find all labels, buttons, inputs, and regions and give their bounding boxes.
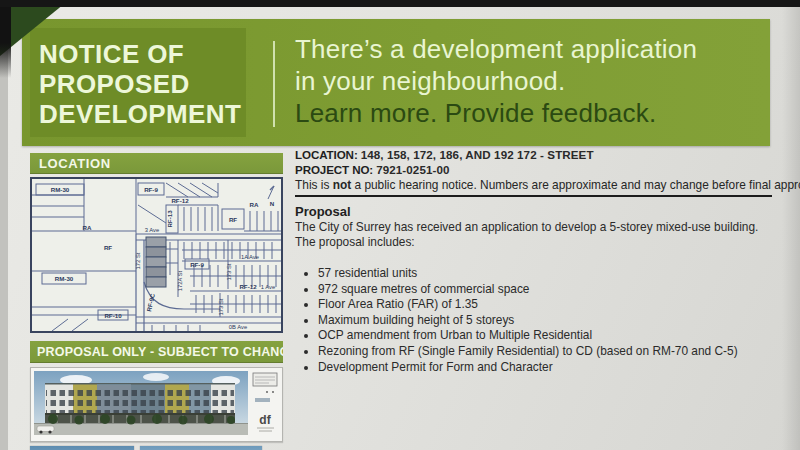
bullet-residential-units: 57 residential units [318,266,796,282]
map-label-rf9: RF-9 [144,186,158,193]
proposal-heading: Proposal [295,204,351,219]
map-label-rf10: RF-10 [104,312,122,319]
header-divider [273,41,275,127]
map-label-1-ave: 1 Ave [261,284,275,290]
map-label-172st: 172 St [135,252,141,269]
zoning-map-drawing: RM-30 RF-9 RF-12 RA N RF-13 RF RA 3 Ave … [32,179,281,331]
map-label-rf12-right: RF-12 [239,283,257,290]
secondary-rendering-thumb-left [30,446,134,450]
photo-left-edge [0,0,11,78]
map-label-rm30: RM-30 [51,186,70,193]
notice-title-line2: PROPOSED [39,69,246,99]
proposal-intro: The City of Surrey has received an appli… [295,220,763,251]
subject-site-parcels [146,237,166,287]
hearing-disclaimer-not: not [333,178,352,192]
notice-title-line3: DEVELOPMENT [39,99,246,129]
proposal-bullet-list: 57 residential units 972 square metres o… [295,266,796,375]
zoning-map: RM-30 RF-9 RF-12 RA N RF-13 RF RA 3 Ave … [30,177,283,333]
header-message-line2: in your neighbourhood. [295,65,697,97]
photo-top-edge [0,0,800,7]
location-label: LOCATION: [295,148,358,161]
photo-right-shade [782,0,800,450]
map-label-3ave: 3 Ave [145,227,159,233]
map-label-173st-lower: 173 St [218,298,224,315]
notice-title-block: NOTICE OF PROPOSED DEVELOPMENT [30,28,246,137]
notice-title-line1: NOTICE OF [39,39,246,69]
map-label-ra-right: RA [250,201,259,208]
map-label-rf13: RF-13 [166,210,173,228]
map-label-173st-upper: 173 St [226,263,232,280]
header-band: NOTICE OF PROPOSED DEVELOPMENT There’s a… [22,19,770,146]
bullet-building-height: Maximum building height of 5 storeys [318,313,796,329]
building-rendering-drawing: df [31,368,282,441]
hearing-disclaimer-post: a public hearing notice. Numbers are app… [351,178,800,192]
bullet-commercial-space: 972 square metres of commercial space [318,282,796,298]
map-label-rf-center: RF [229,216,237,223]
notice-title: NOTICE OF PROPOSED DEVELOPMENT [30,28,246,129]
header-message: There’s a development application in you… [295,33,697,129]
map-label-rf-left: RF [104,244,112,251]
header-message-cta: Learn more. Provide feedback. [295,97,697,129]
building-rendering: df [30,367,283,442]
divider-rule [295,195,772,197]
location-value: 148, 158, 172, 186, AND 192 172 - STREET [361,148,594,161]
proposal-disclaimer-bar: PROPOSAL ONLY - SUBJECT TO CHANGE [30,341,283,363]
secondary-rendering-thumb-right [140,446,262,450]
header-message-line1: There’s a development application [295,33,697,65]
map-label-rm30-lower: RM-30 [55,275,74,282]
map-label-172ast: 172A St [177,270,183,291]
map-label-rf9-right: RF-9 [190,261,204,268]
map-label-1a-ave: 1A Ave [241,254,259,260]
bullet-rezoning: Rezoning from RF (Single Family Resident… [318,344,796,360]
bullet-far: Floor Area Ratio (FAR) of 1.35 [318,297,796,313]
map-label-north: N [270,200,275,207]
bullet-ocp-amendment: OCP amendment from Urban to Multiple Res… [318,328,796,344]
map-label-rf12: RF-12 [171,197,189,204]
map-label-ra-left: RA [83,224,92,231]
architect-logo: df [259,413,271,427]
hearing-disclaimer: This is not a public hearing notice. Num… [295,178,800,192]
map-label-rf9c: RF-9C [145,292,156,312]
project-value: 7921-0251-00 [376,163,449,176]
site-plan-stamp [253,373,277,386]
bullet-development-permit: Development Permit for Form and Characte… [318,360,796,376]
location-line: LOCATION:148, 158, 172, 186, AND 192 172… [295,147,594,162]
map-label-0b-ave: 0B Ave [229,324,247,330]
hearing-disclaimer-pre: This is [295,178,333,192]
location-bar: LOCATION [30,153,283,174]
meta-block: LOCATION:148, 158, 172, 186, AND 192 172… [295,147,594,177]
project-line: PROJECT NO:7921-0251-00 [295,162,594,177]
project-label: PROJECT NO: [295,163,373,176]
